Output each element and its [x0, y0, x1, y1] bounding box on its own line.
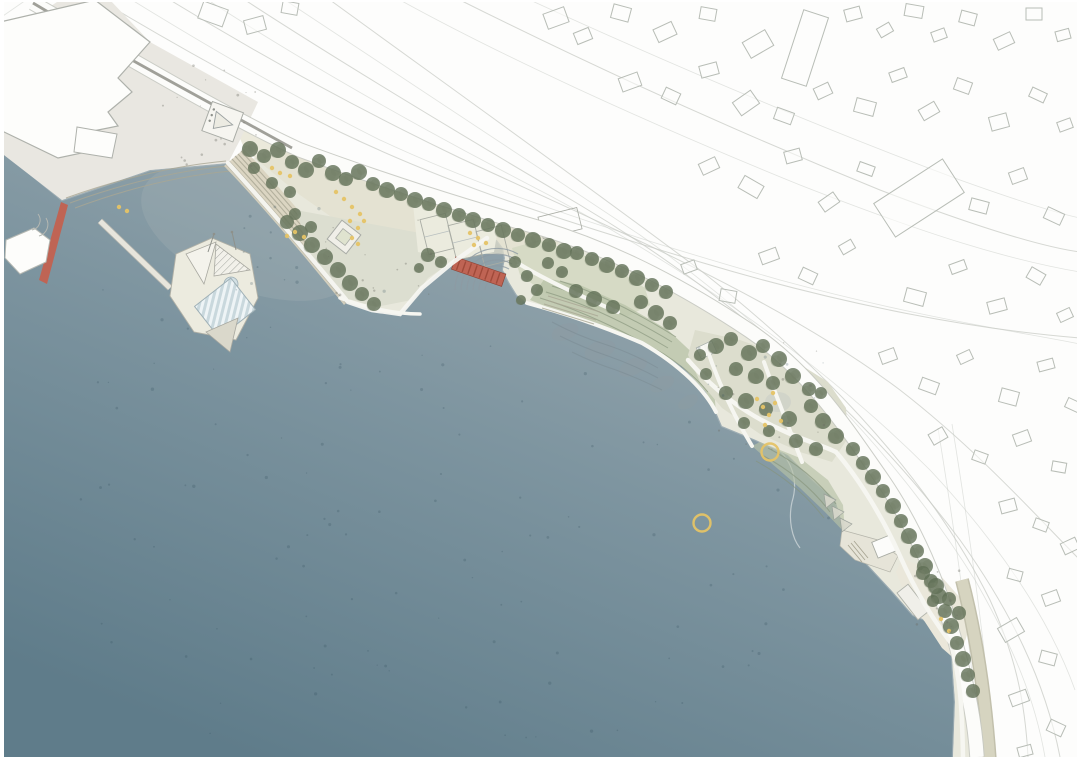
water-speckle — [757, 652, 760, 655]
water-speckle — [722, 665, 725, 668]
water-speckle — [463, 559, 466, 562]
water-speckle — [578, 526, 580, 528]
water-speckle — [269, 257, 272, 260]
ground-speckle — [373, 287, 375, 289]
water-speckle — [151, 388, 154, 391]
water-speckle — [187, 328, 189, 330]
water-speckle — [490, 345, 492, 347]
water-speckle — [688, 421, 691, 424]
water-speckle — [786, 363, 789, 366]
ground-speckle — [250, 164, 252, 166]
water-speckle — [243, 227, 245, 229]
water-speckle — [325, 382, 327, 384]
playground-marking — [472, 243, 476, 247]
ground-speckle — [732, 393, 734, 395]
ground-speckle — [335, 292, 337, 294]
ground-speckle — [949, 599, 952, 602]
water-speckle — [420, 388, 423, 391]
ground-speckle — [937, 571, 939, 573]
playground-marking — [468, 231, 472, 235]
ground-speckle — [430, 253, 433, 256]
water-speckle — [827, 517, 830, 520]
water-speckle — [378, 510, 381, 513]
water-speckle — [313, 667, 315, 669]
water-speckle — [250, 282, 253, 285]
water-speckle — [153, 363, 154, 364]
water-speckle — [708, 383, 710, 385]
water-speckle — [246, 337, 247, 338]
ground-speckle — [325, 241, 326, 242]
ground-speckle — [201, 153, 204, 156]
ground-speckle — [949, 631, 951, 633]
water-speckle — [102, 289, 104, 291]
water-speckle — [249, 215, 252, 218]
water-speckle — [324, 645, 327, 648]
ground-speckle — [325, 248, 327, 250]
water-speckle — [273, 205, 276, 208]
ground-speckle — [745, 443, 747, 445]
playground-marking — [348, 219, 352, 223]
water-speckle — [676, 625, 679, 628]
water-speckle — [438, 618, 439, 619]
ground-speckle — [914, 575, 917, 578]
water-speckle — [108, 484, 110, 486]
water-speckle — [384, 665, 387, 668]
ground-speckle — [215, 139, 218, 142]
water-speckle — [698, 347, 701, 350]
context-building-footprint — [699, 7, 717, 22]
water-speckle — [764, 356, 767, 359]
water-speckle — [101, 623, 103, 625]
water-speckle — [434, 499, 437, 502]
water-speckle — [184, 484, 186, 486]
ground-speckle — [778, 436, 780, 438]
ground-speckle — [946, 621, 948, 623]
water-speckle — [822, 362, 823, 363]
ground-speckle — [364, 254, 365, 255]
ground-speckle — [417, 219, 418, 220]
water-speckle — [383, 290, 386, 293]
water-speckle — [115, 407, 118, 410]
ground-speckle — [183, 159, 186, 162]
water-speckle — [367, 650, 369, 652]
water-speckle — [323, 518, 325, 520]
ground-speckle — [362, 279, 364, 281]
water-speckle — [250, 658, 253, 661]
ground-speckle — [916, 623, 919, 626]
water-speckle — [339, 366, 342, 369]
ground-speckle — [779, 363, 781, 365]
playground-marking — [334, 190, 338, 194]
water-speckle — [547, 536, 550, 539]
ground-speckle — [787, 422, 789, 424]
water-speckle — [305, 615, 307, 617]
ground-speckle — [223, 143, 226, 146]
ground-speckle — [192, 64, 195, 67]
context-building-footprint — [904, 4, 924, 19]
water-speckle — [764, 622, 767, 625]
ground-speckle — [936, 607, 938, 609]
water-speckle — [236, 289, 238, 291]
ground-speckle — [396, 269, 398, 271]
water-speckle — [657, 444, 659, 446]
masterplan-svg — [0, 0, 1080, 763]
water-speckle — [535, 736, 536, 737]
ground-speckle — [783, 342, 784, 343]
water-speckle — [441, 363, 444, 366]
playground-marking — [939, 617, 943, 621]
playground-marking — [117, 205, 121, 209]
water-speckle — [751, 650, 753, 652]
ground-speckle — [428, 294, 429, 295]
ground-speckle — [177, 97, 178, 98]
water-speckle — [216, 628, 218, 630]
playground-marking — [350, 236, 354, 240]
playground-marking — [761, 405, 765, 409]
site-plan-canvas — [0, 0, 1080, 763]
playground-marking — [763, 423, 767, 427]
water-speckle — [465, 706, 467, 708]
ground-speckle — [782, 378, 785, 381]
water-speckle — [97, 381, 99, 383]
ground-speckle — [339, 294, 342, 297]
context-building-footprint — [1051, 461, 1067, 473]
water-speckle — [568, 516, 570, 518]
playground-marking — [771, 391, 775, 395]
water-speckle — [295, 266, 298, 269]
water-speckle — [707, 468, 710, 471]
water-speckle — [192, 485, 195, 488]
water-speckle — [710, 584, 713, 587]
water-speckle — [213, 368, 214, 369]
ground-speckle — [958, 569, 961, 572]
playground-marking — [125, 209, 129, 213]
water-speckle — [209, 733, 211, 735]
ground-speckle — [220, 138, 222, 140]
water-speckle — [345, 533, 347, 535]
playground-marking — [476, 236, 480, 240]
playground-marking — [288, 174, 292, 178]
water-speckle — [270, 327, 271, 328]
ground-speckle — [223, 70, 225, 72]
water-speckle — [617, 730, 619, 732]
playground-marking — [270, 166, 274, 170]
water-speckle — [521, 400, 523, 402]
water-speckle — [584, 372, 587, 375]
water-speckle — [153, 546, 155, 548]
water-speckle — [185, 655, 188, 658]
context-building-footprint — [719, 289, 737, 304]
ground-speckle — [254, 91, 256, 93]
water-speckle — [643, 441, 645, 443]
playground-marking — [302, 235, 306, 239]
water-speckle — [504, 734, 506, 736]
water-speckle — [681, 702, 683, 704]
ground-speckle — [245, 92, 246, 93]
water-speckle — [160, 318, 163, 321]
ground-speckle — [809, 384, 812, 387]
playground-marking — [356, 226, 360, 230]
ground-speckle — [718, 430, 720, 432]
context-building-footprint — [281, 1, 299, 16]
playground-marking — [356, 242, 360, 246]
water-speckle — [306, 472, 307, 473]
playground-marking — [755, 397, 759, 401]
water-speckle — [389, 670, 390, 671]
playground-marking — [779, 419, 783, 423]
water-speckle — [652, 533, 655, 536]
water-speckle — [314, 692, 317, 695]
water-speckle — [776, 488, 779, 491]
water-speckle — [275, 557, 277, 559]
water-speckle — [215, 423, 217, 425]
water-speckle — [668, 658, 670, 660]
water-speckle — [472, 577, 473, 578]
water-speckle — [814, 397, 815, 398]
water-speckle — [295, 280, 298, 283]
playground-marking — [278, 171, 282, 175]
water-speckle — [110, 641, 112, 643]
ground-speckle — [181, 157, 183, 159]
ground-speckle — [817, 431, 818, 432]
water-speckle — [379, 371, 381, 373]
water-speckle — [302, 565, 305, 568]
playground-marking — [773, 401, 777, 405]
water-speckle — [108, 382, 109, 383]
water-speckle — [270, 231, 272, 233]
water-speckle — [440, 473, 442, 475]
water-speckle — [443, 407, 445, 409]
water-speckle — [284, 279, 286, 281]
water-speckle — [501, 551, 503, 553]
water-speckle — [317, 207, 320, 210]
water-speckle — [716, 365, 718, 367]
water-speckle — [287, 545, 290, 548]
water-speckle — [377, 665, 378, 666]
water-speckle — [590, 730, 593, 733]
ground-speckle — [405, 263, 407, 265]
water-speckle — [265, 476, 268, 479]
water-speckle — [350, 390, 351, 391]
ground-speckle — [162, 105, 164, 107]
water-speckle — [520, 601, 522, 603]
ground-speckle — [236, 156, 237, 157]
playground-marking — [362, 219, 366, 223]
ground-speckle — [332, 227, 333, 228]
water-speckle — [748, 664, 750, 666]
water-speckle — [519, 497, 521, 499]
ground-speckle — [236, 94, 239, 97]
playground-marking — [358, 212, 362, 216]
ground-speckle — [951, 626, 952, 627]
water-speckle — [458, 434, 460, 436]
water-speckle — [337, 510, 340, 513]
water-speckle — [722, 394, 725, 397]
ground-speckle — [418, 285, 419, 286]
playground-marking — [293, 230, 297, 234]
water-speckle — [556, 652, 559, 655]
water-speckle — [732, 573, 734, 575]
water-speckle — [339, 363, 341, 365]
ground-speckle — [718, 387, 719, 388]
ground-speckle — [200, 105, 201, 106]
water-speckle — [493, 640, 496, 643]
water-speckle — [782, 588, 785, 591]
water-speckle — [351, 598, 353, 600]
water-speckle — [421, 355, 422, 356]
water-speckle — [246, 454, 248, 456]
water-speckle — [655, 701, 656, 702]
water-speckle — [548, 682, 551, 685]
water-speckle — [169, 599, 170, 600]
water-speckle — [328, 523, 331, 526]
ground-speckle — [956, 614, 958, 616]
playground-marking — [767, 413, 771, 417]
water-speckle — [99, 486, 102, 489]
water-speckle — [220, 703, 221, 704]
water-speckle — [525, 737, 527, 739]
water-speckle — [766, 565, 768, 567]
water-speckle — [321, 443, 324, 446]
water-speckle — [281, 437, 282, 438]
water-speckle — [395, 592, 398, 595]
water-speckle — [80, 498, 82, 500]
water-speckle — [331, 674, 333, 676]
ground-speckle — [816, 350, 817, 351]
ground-speckle — [771, 448, 772, 449]
water-speckle — [500, 604, 502, 606]
ground-speckle — [243, 122, 245, 124]
playground-marking — [484, 241, 488, 245]
ground-speckle — [255, 134, 257, 136]
context-building-footprint — [1026, 8, 1042, 20]
water-speckle — [243, 251, 245, 253]
playground-marking — [285, 234, 289, 238]
ground-speckle — [823, 424, 825, 426]
ground-speckle — [373, 289, 375, 291]
ground-speckle — [205, 79, 206, 80]
water-speckle — [134, 538, 136, 540]
ground-speckle — [328, 256, 329, 257]
playground-marking — [342, 197, 346, 201]
water-speckle — [499, 701, 502, 704]
water-speckle — [529, 534, 531, 536]
ground-speckle — [185, 163, 187, 165]
water-speckle — [733, 458, 735, 460]
playground-marking — [350, 205, 354, 209]
water-speckle — [257, 266, 259, 268]
water-speckle — [306, 534, 308, 536]
water-speckle — [591, 445, 594, 448]
